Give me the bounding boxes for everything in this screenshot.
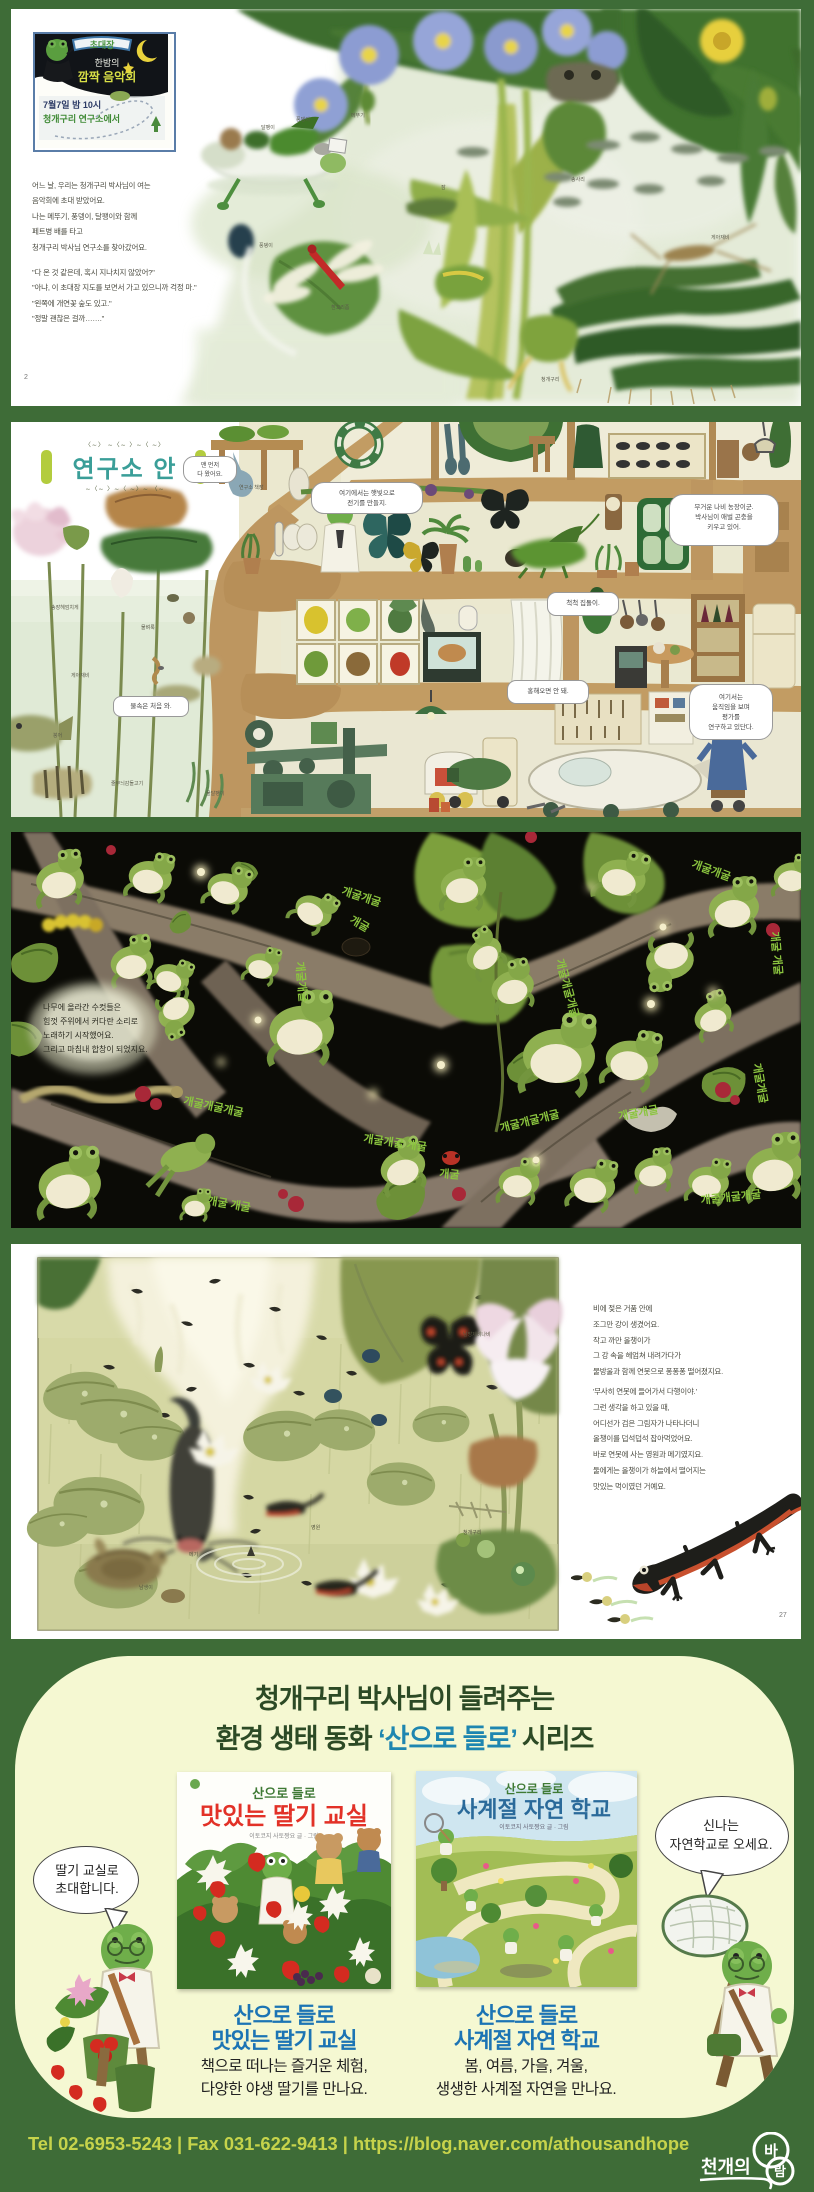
svg-text:나무에 올라간 수컷들은: 나무에 올라간 수컷들은 (43, 1002, 121, 1012)
svg-text:개굴 개굴: 개굴 개굴 (768, 931, 786, 976)
svg-text:맛있는 딸기 교실: 맛있는 딸기 교실 (200, 1803, 368, 1830)
svg-text:게아재비: 게아재비 (711, 234, 729, 241)
svg-text:청개구리: 청개구리 (463, 1529, 481, 1536)
svg-text:사계절 자연 학교: 사계절 자연 학교 (457, 1797, 611, 1822)
svg-text:남생이: 남생이 (139, 1584, 153, 1591)
svg-text:이토코지 사토짱요 글 · 그림: 이토코지 사토짱요 글 · 그림 (249, 1832, 318, 1840)
svg-text:청개구리 연구소에서: 청개구리 연구소에서 (43, 113, 120, 124)
svg-text:이토코지 사토짱요 글 · 그림: 이토코지 사토짱요 글 · 그림 (499, 1823, 568, 1831)
svg-text:힘껏 주위에서 커다란 소리로: 힘껏 주위에서 커다란 소리로 (43, 1016, 138, 1026)
svg-text:남방제비나비: 남방제비나비 (463, 1331, 491, 1338)
svg-text:개굴: 개굴 (439, 1166, 460, 1182)
svg-text:청개구리: 청개구리 (541, 376, 559, 383)
svg-text:그리고 마침내 합창이 되었지요.: 그리고 마침내 합창이 되었지요. (43, 1044, 148, 1054)
svg-text:영원: 영원 (311, 1524, 321, 1531)
svg-text:초대장: 초대장 (90, 39, 116, 50)
svg-text:노래하기 시작했어요.: 노래하기 시작했어요. (43, 1030, 114, 1040)
svg-text:한밤의: 한밤의 (95, 58, 120, 68)
svg-text:잠: 잠 (441, 184, 446, 191)
svg-text:송사리: 송사리 (571, 176, 585, 183)
svg-text:개굴개굴: 개굴개굴 (750, 1062, 771, 1104)
svg-text:풍뎅이: 풍뎅이 (296, 116, 310, 123)
svg-text:흰꼬리좀: 흰꼬리좀 (331, 304, 350, 311)
svg-text:산으로 들로: 산으로 들로 (252, 1786, 315, 1801)
svg-text:개굴개굴: 개굴개굴 (690, 857, 733, 884)
svg-text:달팽이: 달팽이 (261, 124, 275, 131)
svg-text:메기: 메기 (189, 1551, 198, 1558)
svg-text:깜짝 음악회: 깜짝 음악회 (78, 69, 137, 84)
svg-text:7월7일 밤 10시: 7월7일 밤 10시 (43, 99, 101, 110)
svg-text:개굴개굴: 개굴개굴 (340, 884, 383, 910)
svg-text:개굴: 개굴 (348, 912, 373, 934)
svg-text:천개의: 천개의 (701, 2157, 751, 2177)
svg-text:풍뎅이: 풍뎅이 (259, 242, 273, 249)
svg-text:메뚜기: 메뚜기 (351, 112, 365, 119)
svg-text:산으로 들로: 산으로 들로 (505, 1781, 564, 1796)
